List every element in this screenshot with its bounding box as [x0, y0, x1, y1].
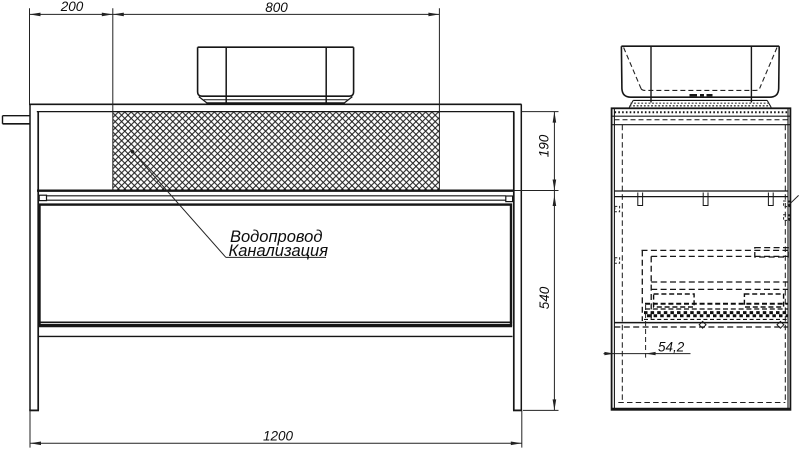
- svg-text:200: 200: [60, 0, 84, 14]
- svg-text:54,2: 54,2: [658, 339, 685, 354]
- svg-text:1200: 1200: [263, 428, 294, 443]
- svg-text:540: 540: [537, 286, 552, 309]
- svg-text:190: 190: [537, 134, 552, 157]
- svg-text:Канализация: Канализация: [229, 242, 329, 260]
- svg-text:800: 800: [265, 0, 288, 15]
